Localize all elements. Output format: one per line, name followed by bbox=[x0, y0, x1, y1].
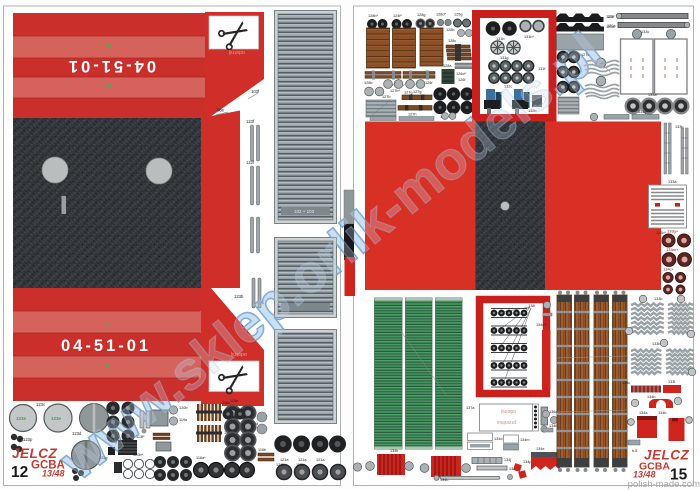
svg-text:134L: 134L bbox=[440, 478, 448, 482]
svg-text:b.5: b.5 bbox=[632, 449, 637, 453]
svg-text:127b*: 127b* bbox=[390, 89, 400, 93]
svg-text:131g: 131g bbox=[500, 56, 508, 60]
svg-text:98e: 98e bbox=[217, 108, 225, 113]
svg-text:128a: 128a bbox=[443, 64, 452, 68]
svg-text:polish-made.com: polish-made.com bbox=[628, 479, 700, 490]
svg-text:04-51-01: 04-51-01 bbox=[66, 57, 156, 75]
svg-text:133m+: 133m+ bbox=[666, 247, 679, 252]
svg-text:126f: 126f bbox=[425, 81, 433, 85]
svg-text:128b: 128b bbox=[446, 28, 454, 32]
svg-text:134c+: 134c+ bbox=[663, 267, 675, 272]
svg-text:121a: 121a bbox=[280, 458, 289, 462]
svg-text:120a: 120a bbox=[607, 24, 616, 28]
svg-text:134b: 134b bbox=[658, 411, 666, 415]
svg-text:103f: 103f bbox=[251, 89, 260, 94]
svg-text:122f: 122f bbox=[607, 15, 615, 19]
svg-text:odetnij: odetnij bbox=[229, 49, 245, 55]
svg-text:133b: 133b bbox=[654, 297, 662, 301]
svg-text:134m: 134m bbox=[520, 438, 530, 442]
svg-text:134k: 134k bbox=[390, 449, 398, 453]
svg-text:115a: 115a bbox=[296, 463, 305, 467]
svg-text:134e: 134e bbox=[536, 447, 544, 451]
svg-text:116b: 116b bbox=[258, 448, 266, 452]
svg-text:134b: 134b bbox=[647, 395, 655, 399]
svg-text:133i: 133i bbox=[668, 380, 675, 384]
svg-text:134j: 134j bbox=[504, 458, 511, 462]
svg-text:120b*: 120b* bbox=[133, 453, 143, 457]
svg-text:133g+: 133g+ bbox=[667, 229, 679, 234]
svg-text:125g: 125g bbox=[454, 13, 462, 17]
svg-text:133b: 133b bbox=[652, 342, 660, 346]
svg-text:133c: 133c bbox=[641, 30, 649, 34]
svg-text:122f: 122f bbox=[246, 160, 255, 165]
svg-text:134b: 134b bbox=[549, 424, 557, 428]
svg-text:115c: 115c bbox=[222, 401, 230, 405]
svg-text:123e: 123e bbox=[51, 416, 62, 421]
svg-text:04-51-01: 04-51-01 bbox=[61, 337, 151, 355]
svg-text:127g: 127g bbox=[404, 91, 412, 95]
svg-text:128b*: 128b* bbox=[368, 14, 378, 18]
svg-text:133g: 133g bbox=[638, 110, 646, 114]
svg-text:123f: 123f bbox=[246, 119, 255, 124]
svg-text:121b: 121b bbox=[276, 463, 284, 467]
svg-text:128d*: 128d* bbox=[436, 13, 446, 17]
svg-text:121a: 121a bbox=[316, 458, 325, 462]
svg-text:134e*: 134e* bbox=[536, 323, 546, 327]
svg-text:102 + 103: 102 + 103 bbox=[294, 209, 315, 214]
svg-text:124f*: 124f* bbox=[393, 14, 402, 18]
svg-text:116a*: 116a* bbox=[196, 456, 206, 460]
svg-text:przednia: przednia bbox=[497, 419, 516, 425]
svg-text:12: 12 bbox=[11, 464, 28, 481]
svg-text:137a: 137a bbox=[466, 406, 475, 410]
svg-text:133c: 133c bbox=[622, 381, 630, 385]
svg-text:123e: 123e bbox=[16, 416, 27, 421]
svg-text:123c: 123c bbox=[36, 402, 45, 407]
svg-text:119a: 119a bbox=[179, 418, 188, 422]
svg-text:133b*: 133b* bbox=[656, 231, 666, 235]
svg-text:127g: 127g bbox=[413, 90, 421, 94]
svg-text:115a: 115a bbox=[230, 399, 239, 403]
svg-text:134p: 134p bbox=[523, 460, 531, 464]
svg-text:128c: 128c bbox=[448, 39, 456, 43]
svg-text:odetnij: odetnij bbox=[501, 408, 516, 414]
svg-text:123p: 123p bbox=[23, 437, 33, 442]
svg-text:121a: 121a bbox=[298, 458, 307, 462]
svg-text:127h: 127h bbox=[408, 113, 416, 117]
svg-text:13/48: 13/48 bbox=[42, 469, 65, 479]
svg-text:126f: 126f bbox=[458, 78, 466, 82]
svg-text:133a: 133a bbox=[668, 180, 677, 184]
svg-text:128g: 128g bbox=[417, 13, 425, 17]
svg-text:127b: 127b bbox=[382, 95, 390, 99]
svg-text:133a*: 133a* bbox=[648, 93, 658, 97]
svg-text:126b: 126b bbox=[364, 81, 372, 85]
svg-text:134d: 134d bbox=[494, 437, 502, 441]
svg-text:126d*: 126d* bbox=[456, 72, 466, 76]
svg-text:13/48: 13/48 bbox=[633, 470, 656, 480]
svg-text:131b*: 131b* bbox=[524, 35, 534, 39]
svg-text:134a: 134a bbox=[639, 411, 648, 415]
